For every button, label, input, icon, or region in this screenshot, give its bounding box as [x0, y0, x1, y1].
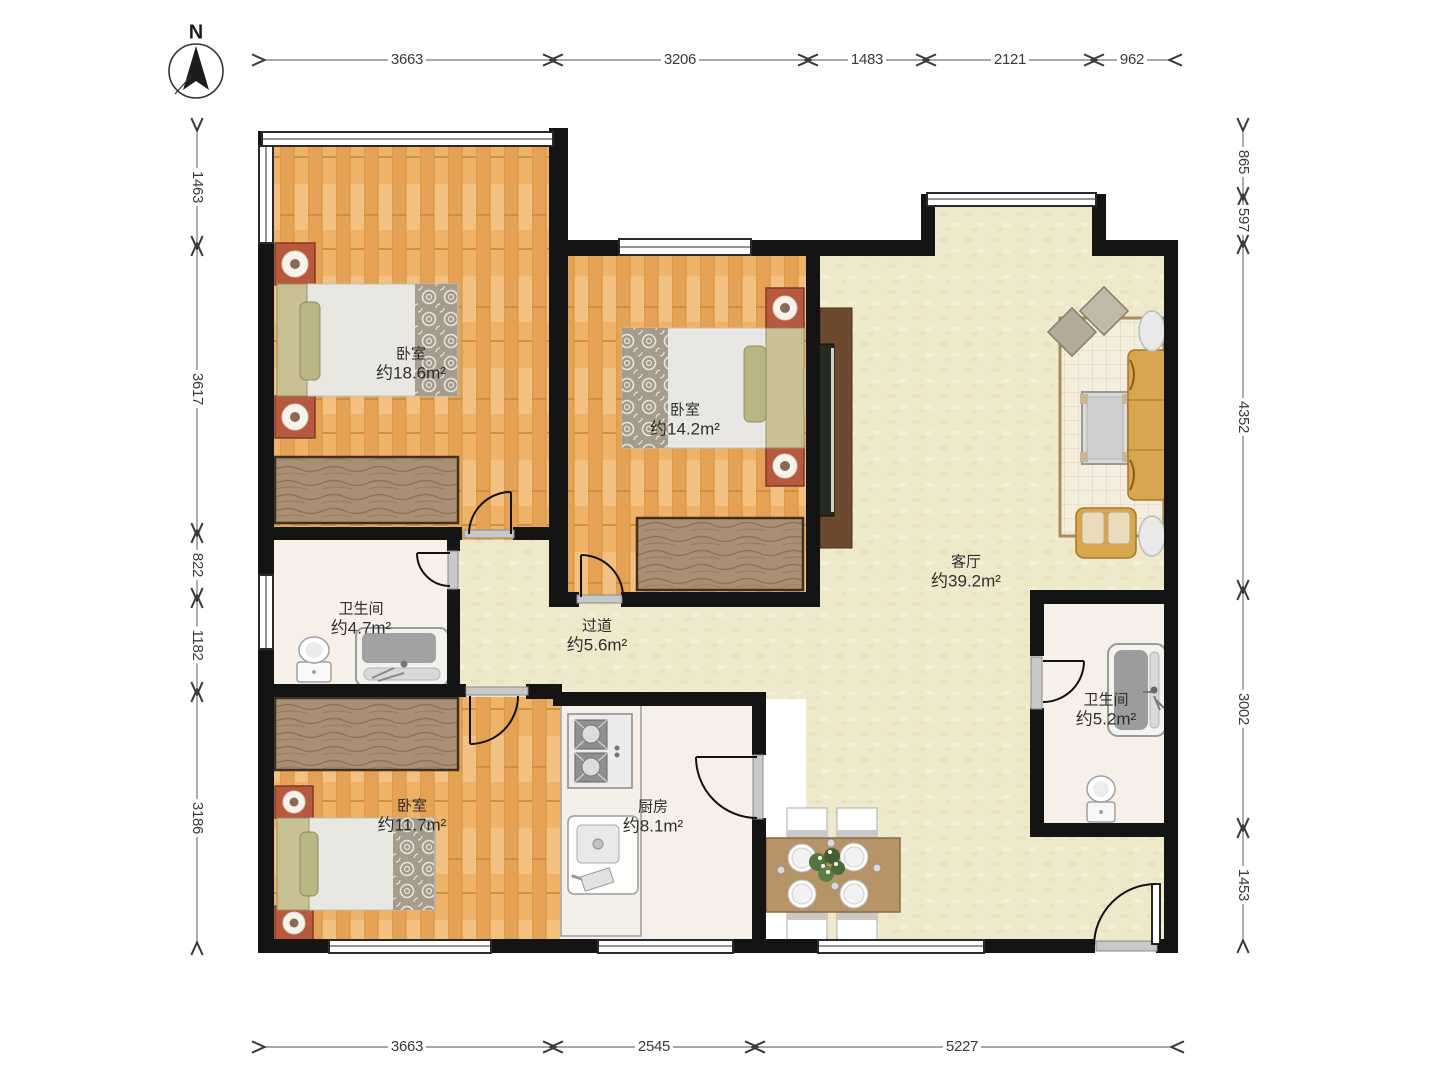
dim-right-4: 3002 — [1235, 690, 1251, 728]
hallway-floor — [453, 533, 560, 699]
north-label: N — [189, 22, 203, 45]
room-area: 约5.6m² — [567, 636, 627, 655]
room-label-hallway: 过道 约5.6m² — [567, 618, 627, 655]
sofa — [1128, 350, 1168, 500]
dim-top-3: 1483 — [848, 52, 886, 68]
room-area: 约8.1m² — [623, 817, 683, 836]
window — [259, 146, 273, 243]
room-label-bedroom-master: 卧室 约18.6m² — [376, 346, 446, 383]
dim-bottom-2: 2545 — [635, 1039, 673, 1055]
window — [259, 575, 273, 649]
floorplan-drawing — [0, 0, 1440, 1080]
window — [329, 940, 491, 953]
dim-right-2: 597 — [1235, 205, 1251, 235]
dim-left-4: 1182 — [189, 626, 205, 663]
toilet-right — [1087, 776, 1115, 822]
stove — [568, 714, 632, 788]
dim-top-4: 2121 — [991, 52, 1029, 68]
wardrobe-middle — [637, 518, 803, 590]
north-compass-icon — [169, 44, 223, 98]
dim-bottom-1: 3663 — [388, 1039, 426, 1055]
room-area: 约11.7m² — [378, 816, 447, 835]
room-name: 厨房 — [623, 799, 683, 817]
dim-left-2: 3617 — [189, 370, 205, 408]
room-name: 过道 — [567, 618, 627, 636]
room-label-bathroom-right: 卫生间 约5.2m² — [1076, 692, 1136, 729]
room-area: 约18.6m² — [376, 364, 446, 383]
tv-console — [818, 308, 852, 548]
room-name: 客厅 — [931, 554, 1001, 572]
room-area: 约5.2m² — [1076, 710, 1136, 729]
room-name: 卧室 — [650, 402, 720, 420]
room-area: 约39.2m² — [931, 572, 1001, 591]
window — [262, 132, 553, 146]
dim-right-3: 4352 — [1235, 398, 1251, 436]
dresser-master — [275, 457, 458, 523]
window — [598, 940, 733, 953]
room-name: 卧室 — [376, 346, 446, 364]
dim-left-5: 3186 — [189, 799, 205, 837]
window — [619, 239, 751, 255]
dim-top-5: 962 — [1117, 52, 1147, 68]
room-label-kitchen: 厨房 约8.1m² — [623, 799, 683, 836]
dim-right-1: 865 — [1235, 147, 1251, 177]
coffee-table — [1080, 392, 1130, 464]
wardrobe-small — [275, 698, 458, 770]
floorplan-canvas: N 卧室 约18.6m² 卧室 约14.2m² 客厅 约39.2m² 卫生间 约… — [0, 0, 1440, 1080]
dim-top-1: 3663 — [388, 52, 426, 68]
armchair — [1076, 508, 1136, 558]
room-label-living-room: 客厅 约39.2m² — [931, 554, 1001, 591]
dim-left-3: 822 — [189, 550, 205, 580]
room-label-bathroom-left: 卫生间 约4.7m² — [331, 601, 391, 638]
living-room-floor — [929, 200, 1098, 256]
dim-right-5: 1453 — [1235, 866, 1251, 904]
dim-top-2: 3206 — [661, 52, 699, 68]
room-area: 约4.7m² — [331, 619, 391, 638]
window — [927, 193, 1096, 206]
room-area: 约14.2m² — [650, 420, 720, 439]
room-name: 卫生间 — [1076, 692, 1136, 710]
room-label-bedroom-middle: 卧室 约14.2m² — [650, 402, 720, 439]
room-label-bedroom-small: 卧室 约11.7m² — [378, 798, 447, 835]
dim-bottom-3: 5227 — [943, 1039, 981, 1055]
room-name: 卧室 — [378, 798, 447, 816]
room-name: 卫生间 — [331, 601, 391, 619]
dim-left-1: 1463 — [189, 168, 205, 206]
window — [818, 940, 984, 953]
